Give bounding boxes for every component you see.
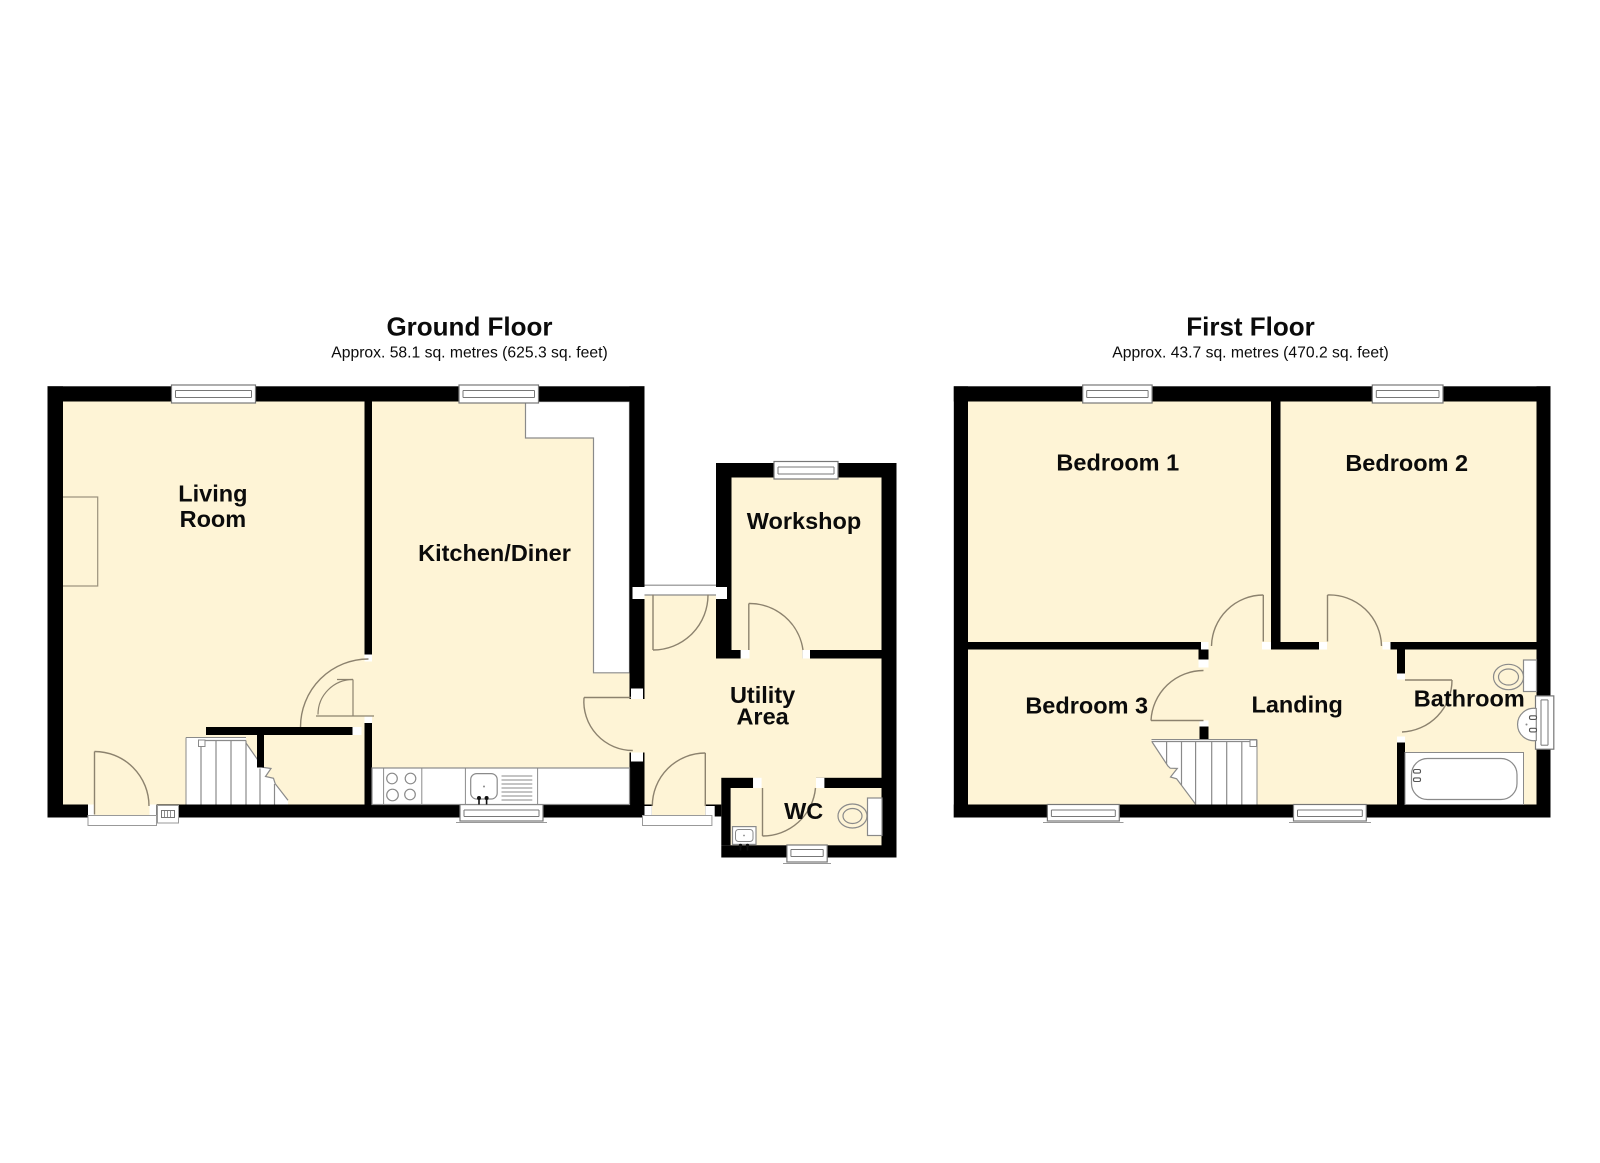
svg-text:Bedroom 2: Bedroom 2 <box>1345 450 1468 476</box>
svg-text:Room: Room <box>180 506 247 532</box>
svg-text:Approx. 43.7 sq. metres (470.2: Approx. 43.7 sq. metres (470.2 sq. feet) <box>1112 345 1388 362</box>
svg-text:Area: Area <box>736 704 789 730</box>
svg-text:Bedroom 1: Bedroom 1 <box>1056 450 1179 476</box>
svg-text:Kitchen/Diner: Kitchen/Diner <box>418 540 571 566</box>
svg-text:Bedroom 3: Bedroom 3 <box>1025 693 1148 719</box>
svg-text:WC: WC <box>784 798 823 824</box>
svg-text:Ground Floor: Ground Floor <box>386 312 552 342</box>
svg-text:Landing: Landing <box>1252 692 1343 718</box>
svg-text:Living: Living <box>178 481 247 507</box>
svg-text:First Floor: First Floor <box>1186 312 1315 342</box>
svg-text:Workshop: Workshop <box>747 508 861 534</box>
svg-text:Approx. 58.1 sq. metres (625.3: Approx. 58.1 sq. metres (625.3 sq. feet) <box>331 345 607 362</box>
svg-text:Bathroom: Bathroom <box>1414 686 1525 712</box>
